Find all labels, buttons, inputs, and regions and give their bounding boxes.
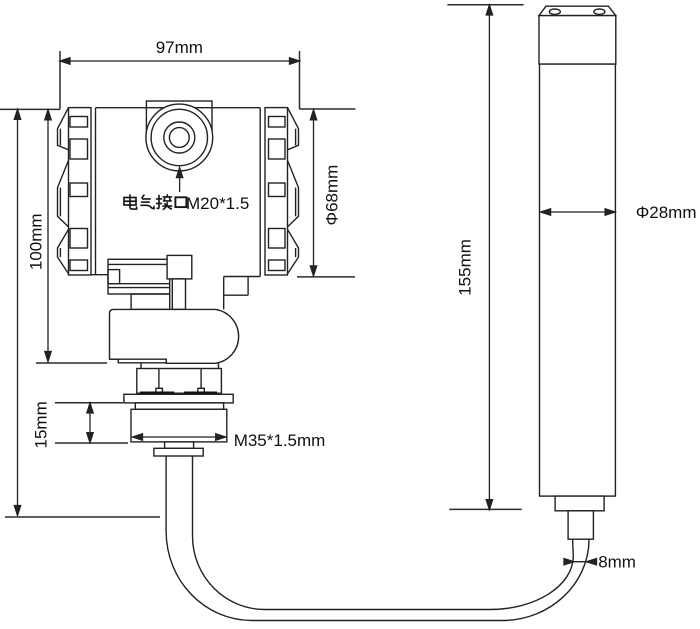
svg-text:8mm: 8mm: [598, 553, 636, 572]
svg-text:M20*1.5: M20*1.5: [186, 194, 249, 213]
svg-text:Φ28mm: Φ28mm: [636, 203, 697, 222]
svg-text:15mm: 15mm: [32, 401, 51, 448]
svg-text:Φ68mm: Φ68mm: [323, 165, 342, 226]
svg-text:97mm: 97mm: [156, 38, 203, 57]
svg-text:100mm: 100mm: [27, 213, 46, 270]
svg-text:M35*1.5mm: M35*1.5mm: [234, 431, 326, 450]
svg-text:155mm: 155mm: [456, 239, 475, 296]
